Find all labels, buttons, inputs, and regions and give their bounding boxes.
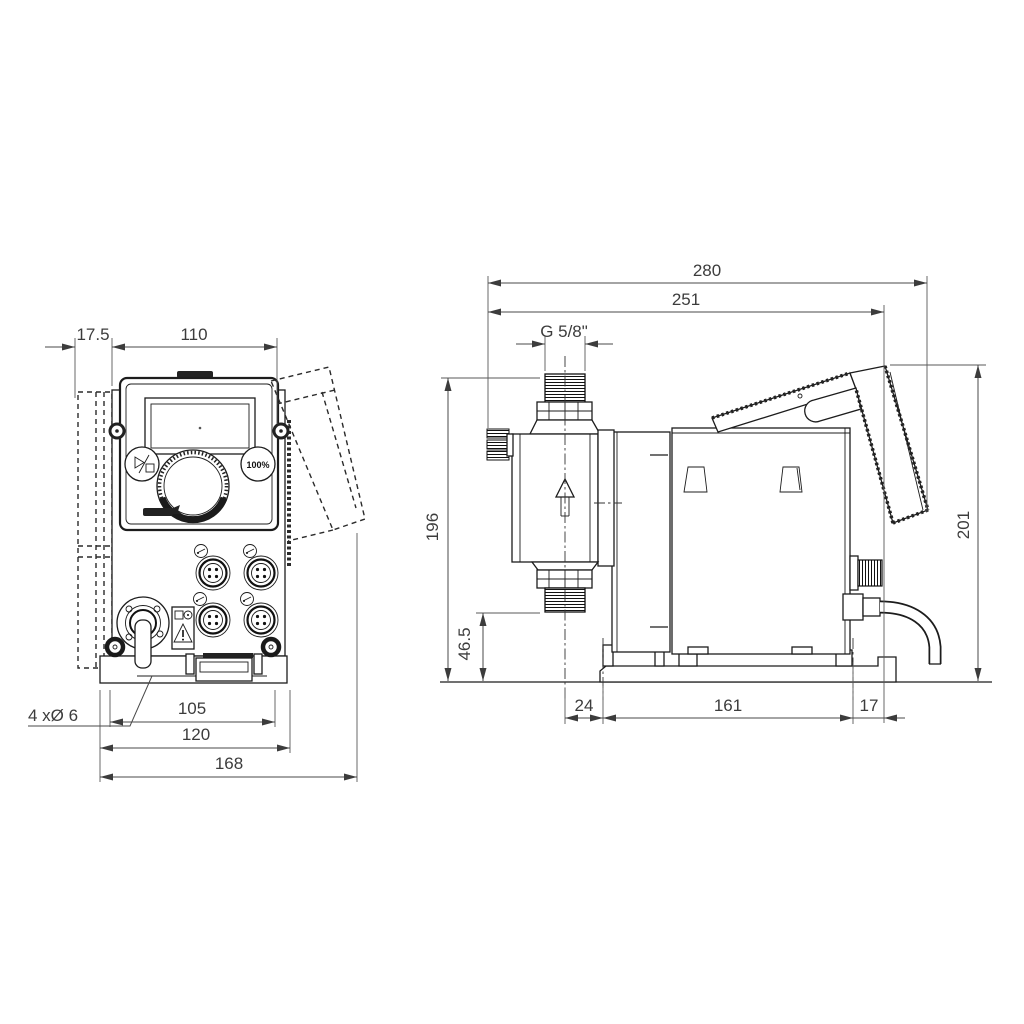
dim-hole-to-edge: 17 <box>860 696 879 715</box>
front-foot-plate <box>100 653 287 683</box>
warning-label <box>172 607 194 649</box>
power-cable-assembly <box>843 556 941 664</box>
dimensional-drawing-page: 100% <box>0 0 1024 1024</box>
dim-total-width: 168 <box>215 754 243 773</box>
hundred-percent-label: 100% <box>246 460 269 470</box>
dim-center-to-hole: 24 <box>575 696 594 715</box>
mounting-holes-label: 4 xØ 6 <box>28 706 78 725</box>
dim-body-width: 110 <box>180 325 207 344</box>
outlet-union-nut <box>537 402 592 420</box>
dim-wall-offset: 17.5 <box>76 325 109 344</box>
display <box>145 398 255 454</box>
m12-connector-socket[interactable] <box>196 603 230 637</box>
dim-plate-width: 120 <box>182 725 210 744</box>
inlet-union-nut <box>537 570 592 588</box>
clamp-rail-bar <box>203 653 253 658</box>
dim-hole-spacing-front: 105 <box>178 699 206 718</box>
front-view: 100% <box>28 325 365 782</box>
dim-connection-height: 46.5 <box>455 627 474 660</box>
panel-screw-right <box>274 424 288 438</box>
adapter-flange <box>612 432 670 652</box>
dim-total-height: 201 <box>954 511 973 539</box>
corner-screw <box>263 639 279 655</box>
cable <box>135 620 151 668</box>
dim-thread-size: G 5/8" <box>540 322 588 341</box>
m12-connector-socket[interactable] <box>244 603 278 637</box>
start-stop-button[interactable] <box>125 447 159 481</box>
cable-gland-thread <box>858 560 882 586</box>
priming-knob[interactable] <box>487 429 513 460</box>
wall-mounting-plate <box>78 392 112 668</box>
dim-depth-to-cable: 251 <box>672 290 700 309</box>
drive-housing <box>672 428 850 654</box>
m12-connector-socket[interactable] <box>244 556 278 590</box>
corner-screw <box>107 639 123 655</box>
m12-connector-socket[interactable] <box>196 556 230 590</box>
dim-total-depth: 280 <box>693 261 721 280</box>
hundred-percent-button[interactable]: 100% <box>241 447 275 481</box>
control-panel: 100% <box>110 371 288 530</box>
display-dot <box>199 427 202 430</box>
side-view: 280 251 G 5/8" 196 46.5 201 24 161 17 <box>423 261 992 724</box>
dim-hole-spacing-side: 161 <box>714 696 742 715</box>
pump-dimensional-drawing: 100% <box>0 0 1024 1024</box>
dosing-head <box>487 374 614 612</box>
panel-screw-left <box>110 424 124 438</box>
dim-height-to-connection: 196 <box>423 513 442 541</box>
